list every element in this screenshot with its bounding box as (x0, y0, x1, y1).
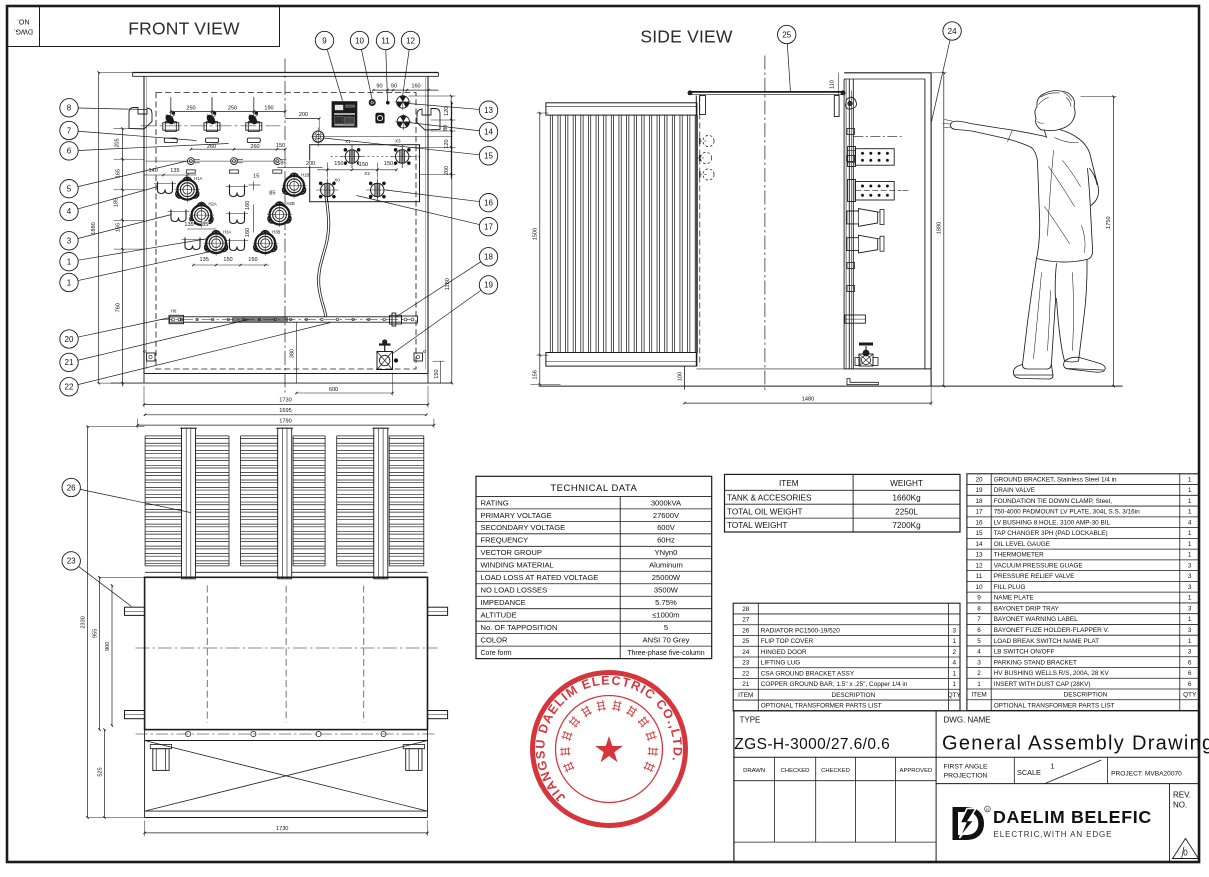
svg-text:TOTAL OIL WEIGHT: TOTAL OIL WEIGHT (727, 507, 803, 516)
svg-text:FREQUENCY: FREQUENCY (481, 536, 529, 545)
svg-text:13: 13 (484, 106, 493, 115)
svg-text:HV BUSHING WELLS R/S, 200A, 2: HV BUSHING WELLS R/S, 200A, 28 KV (994, 670, 1110, 677)
svg-text:16: 16 (484, 199, 493, 208)
svg-text:X3: X3 (395, 139, 401, 144)
svg-text:1: 1 (1188, 498, 1192, 505)
svg-text:12: 12 (975, 562, 983, 569)
svg-text:6: 6 (1188, 670, 1192, 677)
svg-text:1: 1 (952, 670, 956, 677)
svg-text:10: 10 (975, 584, 983, 591)
svg-text:X0: X0 (334, 178, 340, 183)
svg-text:3: 3 (1188, 627, 1192, 634)
svg-text:14: 14 (975, 541, 983, 548)
svg-text:5: 5 (67, 185, 72, 194)
svg-text:DRAWN: DRAWN (743, 768, 765, 774)
svg-text:4: 4 (1188, 519, 1192, 526)
svg-text:≤1000m: ≤1000m (652, 611, 679, 620)
svg-text:1: 1 (952, 681, 956, 688)
svg-text:WINDING MATERIAL: WINDING MATERIAL (481, 561, 554, 570)
svg-text:2330: 2330 (80, 616, 86, 628)
svg-text:23: 23 (67, 557, 76, 566)
svg-text:ELECTRIC,WITH AN EDGE: ELECTRIC,WITH AN EDGE (994, 830, 1113, 839)
svg-text:FIRST ANGLE: FIRST ANGLE (943, 764, 988, 771)
svg-text:4: 4 (67, 207, 72, 216)
svg-text:18: 18 (484, 253, 493, 262)
svg-text:X2: X2 (364, 171, 370, 176)
svg-text:3: 3 (1188, 605, 1192, 612)
svg-text:IMPEDANCE: IMPEDANCE (481, 598, 526, 607)
svg-text:11: 11 (381, 36, 390, 45)
svg-text:PROJECTION: PROJECTION (944, 773, 988, 780)
svg-text:NO LOAD LOSSES: NO LOAD LOSSES (481, 586, 548, 595)
svg-text:H3B: H3B (272, 230, 280, 235)
svg-text:760: 760 (115, 303, 121, 312)
svg-text:600: 600 (329, 387, 338, 393)
svg-text:1: 1 (952, 638, 956, 645)
svg-text:26: 26 (742, 627, 750, 634)
svg-text:5.75%: 5.75% (655, 598, 677, 607)
svg-text:525: 525 (97, 767, 103, 776)
svg-text:120: 120 (444, 107, 450, 116)
svg-text:ITEM: ITEM (779, 479, 799, 488)
svg-text:25: 25 (782, 30, 791, 39)
svg-text:OIL LEVEL GAUGE: OIL LEVEL GAUGE (994, 541, 1050, 548)
svg-text:1730: 1730 (276, 826, 288, 832)
svg-text:380: 380 (290, 349, 296, 358)
svg-text:BAYONET FUZE HOLDER-FLAPPER V.: BAYONET FUZE HOLDER-FLAPPER V. (994, 627, 1110, 634)
svg-text:FOUNDATION TIE DOWN CLAMP, Ste: FOUNDATION TIE DOWN CLAMP, Steel, (994, 498, 1112, 505)
svg-text:80: 80 (443, 125, 449, 131)
svg-text:1: 1 (1188, 509, 1192, 516)
svg-text:16: 16 (975, 519, 983, 526)
svg-text:WEIGHT: WEIGHT (890, 479, 923, 488)
svg-text:20: 20 (65, 335, 74, 344)
svg-text:3: 3 (952, 627, 956, 634)
svg-text:1: 1 (67, 258, 72, 267)
svg-text:12: 12 (406, 36, 415, 45)
svg-text:OPTIONAL TRANSFORMER PARTS LIS: OPTIONAL TRANSFORMER PARTS LIST (994, 702, 1115, 709)
svg-text:DAELIM BELEFIC: DAELIM BELEFIC (993, 807, 1152, 827)
svg-text:THERMOMETER: THERMOMETER (994, 552, 1044, 559)
svg-text:REV.: REV. (1173, 791, 1191, 800)
svg-text:BAYONET WARNING LABEL: BAYONET WARNING LABEL (994, 616, 1078, 623)
svg-text:LOAD LOSS AT RATED VOLTAGE: LOAD LOSS AT RATED VOLTAGE (481, 573, 599, 582)
svg-text:85: 85 (202, 222, 208, 228)
svg-text:13: 13 (975, 552, 983, 559)
svg-text:H2A: H2A (209, 202, 217, 207)
svg-text:1880: 1880 (91, 222, 97, 234)
svg-text:18: 18 (975, 498, 983, 505)
svg-text:R: R (986, 807, 989, 812)
svg-text:ANSI 70 Grey: ANSI 70 Grey (643, 636, 690, 645)
svg-text:110: 110 (830, 80, 836, 89)
svg-text:7: 7 (977, 616, 981, 623)
svg-text:QTY: QTY (948, 692, 962, 699)
svg-text:9: 9 (322, 36, 327, 45)
svg-text:1: 1 (1050, 762, 1054, 771)
svg-text:1880: 1880 (937, 222, 943, 234)
svg-text:PRIMARY VOLTAGE: PRIMARY VOLTAGE (481, 511, 552, 520)
svg-text:250: 250 (186, 105, 195, 111)
svg-text:PRESSURE RELIEF VALVE: PRESSURE RELIEF VALVE (994, 573, 1075, 580)
svg-text:190: 190 (264, 105, 273, 111)
svg-text:NO.: NO. (17, 18, 30, 27)
svg-text:FLIP TOP COVER: FLIP TOP COVER (761, 638, 814, 645)
svg-text:0: 0 (1183, 849, 1188, 858)
svg-text:150: 150 (248, 257, 257, 263)
svg-text:ITEM: ITEM (971, 692, 986, 699)
svg-text:3: 3 (1188, 573, 1192, 580)
svg-text:CHECKED: CHECKED (821, 768, 850, 774)
svg-text:955: 955 (93, 629, 99, 638)
svg-text:TYPE: TYPE (740, 716, 761, 725)
svg-text:H1A: H1A (194, 176, 202, 181)
svg-text:2250L: 2250L (895, 507, 918, 516)
svg-text:750-4000 PADMOUNT LV PLATE, 30: 750-4000 PADMOUNT LV PLATE, 304L S.S. 3/… (994, 509, 1140, 516)
svg-text:1790: 1790 (279, 418, 291, 424)
svg-text:20: 20 (975, 476, 983, 483)
svg-text:1: 1 (1188, 638, 1192, 645)
svg-text:TANK & ACCESORIES: TANK & ACCESORIES (727, 493, 812, 502)
svg-text:60Hz: 60Hz (657, 536, 675, 545)
svg-text:VECTOR GROUP: VECTOR GROUP (481, 548, 542, 557)
svg-text:135: 135 (170, 168, 179, 174)
svg-text:FRONT VIEW: FRONT VIEW (128, 18, 240, 38)
svg-text:85: 85 (269, 191, 275, 197)
svg-text:100: 100 (678, 372, 684, 381)
svg-text:No. OF TAPPOSITION: No. OF TAPPOSITION (481, 623, 558, 632)
svg-text:TECHNICAL DATA: TECHNICAL DATA (550, 483, 637, 494)
svg-text:DWG. NAME: DWG. NAME (944, 716, 991, 725)
svg-text:SIDE VIEW: SIDE VIEW (640, 27, 733, 47)
svg-text:8: 8 (977, 605, 981, 612)
svg-text:6: 6 (1188, 659, 1192, 666)
svg-text:Aluminum: Aluminum (649, 561, 683, 570)
svg-text:90: 90 (391, 84, 397, 90)
svg-text:24: 24 (742, 649, 750, 656)
svg-text:160: 160 (411, 84, 420, 90)
svg-text:NO.: NO. (1173, 801, 1187, 810)
svg-text:150: 150 (276, 143, 285, 149)
svg-text:DRAIN VALVE: DRAIN VALVE (994, 487, 1035, 494)
svg-text:22: 22 (65, 383, 74, 392)
svg-text:1: 1 (1188, 530, 1192, 537)
svg-text:19: 19 (484, 281, 493, 290)
svg-text:17: 17 (975, 509, 983, 516)
svg-text:1: 1 (1188, 541, 1192, 548)
svg-text:LB SWITCH ON/OFF: LB SWITCH ON/OFF (994, 649, 1055, 656)
svg-text:OPTIONAL TRANSFORMER PARTS LIS: OPTIONAL TRANSFORMER PARTS LIST (761, 703, 882, 710)
svg-text:2: 2 (977, 670, 981, 677)
svg-text:VACUUM PRESSURE GUAGE: VACUUM PRESSURE GUAGE (994, 562, 1083, 569)
svg-text:17: 17 (484, 223, 493, 232)
svg-text:1480: 1480 (802, 397, 814, 403)
svg-text:10: 10 (355, 36, 364, 45)
svg-text:DWG.: DWG. (13, 28, 33, 37)
svg-text:BAYONET DRIP TRAY: BAYONET DRIP TRAY (994, 605, 1060, 612)
svg-text:8: 8 (67, 104, 72, 113)
svg-text:200: 200 (306, 161, 315, 167)
svg-text:205: 205 (115, 138, 121, 147)
svg-text:QTY: QTY (1183, 692, 1197, 699)
svg-text:6: 6 (977, 627, 981, 634)
svg-text:ITEM: ITEM (738, 692, 753, 699)
svg-text:6: 6 (1188, 681, 1192, 688)
svg-text:7200Kg: 7200Kg (892, 521, 921, 530)
svg-text:1: 1 (67, 278, 72, 287)
svg-text:COPPER GROUND BAR, 1.5" x .25": COPPER GROUND BAR, 1.5" x .25", Copper 1… (761, 681, 908, 688)
svg-text:600V: 600V (657, 523, 676, 532)
svg-text:900: 900 (105, 642, 111, 651)
svg-text:9: 9 (977, 595, 981, 602)
svg-text:H0: H0 (171, 309, 177, 314)
svg-text:150: 150 (384, 161, 393, 167)
svg-text:15: 15 (484, 152, 493, 161)
svg-text:CSA GROUND BRACKET ASSY: CSA GROUND BRACKET ASSY (761, 670, 855, 677)
svg-text:185: 185 (114, 198, 120, 207)
svg-text:22: 22 (742, 670, 750, 677)
svg-text:26: 26 (67, 483, 76, 492)
svg-text:200: 200 (299, 112, 308, 118)
svg-text:135: 135 (200, 257, 209, 263)
svg-text:Core form: Core form (481, 650, 512, 657)
svg-text:APPROVED: APPROVED (900, 768, 933, 774)
svg-text:19: 19 (975, 487, 983, 494)
svg-text:1: 1 (977, 681, 981, 688)
svg-text:4: 4 (977, 649, 981, 656)
svg-text:90: 90 (376, 84, 382, 90)
svg-text:3: 3 (1188, 584, 1192, 591)
svg-text:150: 150 (434, 369, 440, 378)
svg-text:LIFTING LUG: LIFTING LUG (761, 660, 800, 667)
svg-text:PROJECT: MVBA20070: PROJECT: MVBA20070 (1111, 771, 1182, 778)
svg-text:160: 160 (245, 201, 251, 210)
svg-text:15: 15 (975, 530, 983, 537)
svg-text:TOTAL WEIGHT: TOTAL WEIGHT (727, 521, 787, 530)
svg-text:1750: 1750 (1106, 216, 1112, 228)
svg-text:H3A: H3A (223, 230, 231, 235)
svg-text:TAP CHANGER 3PH (PAD LOCKABLE): TAP CHANGER 3PH (PAD LOCKABLE) (994, 530, 1108, 537)
svg-text:COLOR: COLOR (481, 636, 509, 645)
svg-text:1: 1 (1188, 595, 1192, 602)
svg-text:3: 3 (1188, 649, 1192, 656)
svg-text:1695: 1695 (279, 408, 291, 414)
svg-text:7: 7 (67, 126, 72, 135)
svg-text:1500: 1500 (533, 228, 539, 240)
svg-text:YNyn0: YNyn0 (655, 548, 678, 557)
svg-text:3: 3 (67, 237, 72, 246)
svg-text:4: 4 (952, 660, 956, 667)
svg-text:5: 5 (977, 638, 981, 645)
svg-text:RADIATOR PC1500-19/520: RADIATOR PC1500-19/520 (761, 627, 840, 634)
svg-text:28: 28 (742, 606, 750, 613)
svg-text:DESCRIPTION: DESCRIPTION (1064, 692, 1108, 699)
svg-text:1: 1 (1188, 616, 1192, 623)
svg-text:21: 21 (742, 681, 750, 688)
svg-text:135: 135 (184, 222, 193, 228)
svg-text:27: 27 (742, 617, 750, 624)
svg-text:SCALE: SCALE (1017, 768, 1041, 777)
svg-text:25: 25 (742, 638, 750, 645)
svg-text:LOAD BREAK SWITCH NAME PLAT: LOAD BREAK SWITCH NAME PLAT (994, 638, 1099, 645)
svg-text:H1B: H1B (301, 172, 309, 177)
svg-text:H2B: H2B (287, 201, 295, 206)
svg-text:DESCRIPTION: DESCRIPTION (832, 692, 876, 699)
svg-text:23: 23 (742, 660, 750, 667)
svg-text:150: 150 (223, 257, 232, 263)
svg-text:1730: 1730 (279, 398, 291, 404)
svg-text:3500W: 3500W (654, 586, 679, 595)
svg-text:X1: X1 (345, 139, 351, 144)
svg-text:14: 14 (484, 128, 493, 137)
svg-text:24: 24 (948, 27, 957, 36)
svg-text:LV BUSHING 8 HOLE, 3100 AMP-3: LV BUSHING 8 HOLE, 3100 AMP-30 BIL (994, 519, 1111, 526)
svg-text:6: 6 (67, 147, 72, 156)
svg-text:5: 5 (664, 623, 668, 632)
svg-text:PARKING STAND BRACKET: PARKING STAND BRACKET (994, 659, 1077, 666)
svg-text:ALTITUDE: ALTITUDE (481, 611, 517, 620)
svg-text:SECONDARY VOLTAGE: SECONDARY VOLTAGE (481, 523, 566, 532)
svg-text:160: 160 (245, 228, 251, 237)
svg-text:FILL PLUG: FILL PLUG (994, 584, 1026, 591)
svg-text:27600V: 27600V (653, 511, 680, 520)
svg-text:3000kVA: 3000kVA (651, 498, 682, 507)
svg-text:HINGED DOOR: HINGED DOOR (761, 649, 807, 656)
svg-text:3: 3 (1188, 562, 1192, 569)
svg-text:1: 1 (1188, 552, 1192, 559)
svg-text:NAME PLATE: NAME PLATE (994, 595, 1034, 602)
svg-text:85: 85 (280, 161, 286, 167)
svg-text:2: 2 (952, 649, 956, 656)
svg-text:1: 1 (1188, 487, 1192, 494)
svg-text:RATING: RATING (481, 498, 509, 507)
svg-text:15: 15 (253, 174, 259, 180)
svg-text:1: 1 (1188, 476, 1192, 483)
svg-text:Three-phase five-column: Three-phase five-column (627, 650, 705, 657)
svg-text:150: 150 (359, 162, 368, 168)
svg-text:1660Kg: 1660Kg (892, 493, 921, 502)
svg-text:21: 21 (65, 358, 74, 367)
svg-text:GROUND BRACKET, Stainless Stee: GROUND BRACKET, Stainless Steel 1/4 in (994, 476, 1117, 483)
svg-text:3: 3 (977, 659, 981, 666)
svg-text:INSERT WITH DUST CAP (28KV): INSERT WITH DUST CAP (28KV) (994, 681, 1091, 688)
svg-text:200: 200 (444, 166, 450, 175)
svg-text:156: 156 (533, 370, 539, 379)
svg-text:11: 11 (976, 573, 983, 580)
svg-text:250: 250 (228, 105, 237, 111)
svg-text:CHECKED: CHECKED (781, 768, 810, 774)
svg-text:150: 150 (334, 161, 343, 167)
svg-text:ZGS-H-3000/27.6/0.6: ZGS-H-3000/27.6/0.6 (734, 736, 890, 753)
svg-text:25000W: 25000W (652, 573, 681, 582)
svg-text:General Assembly Drawing: General Assembly Drawing (942, 733, 1209, 755)
